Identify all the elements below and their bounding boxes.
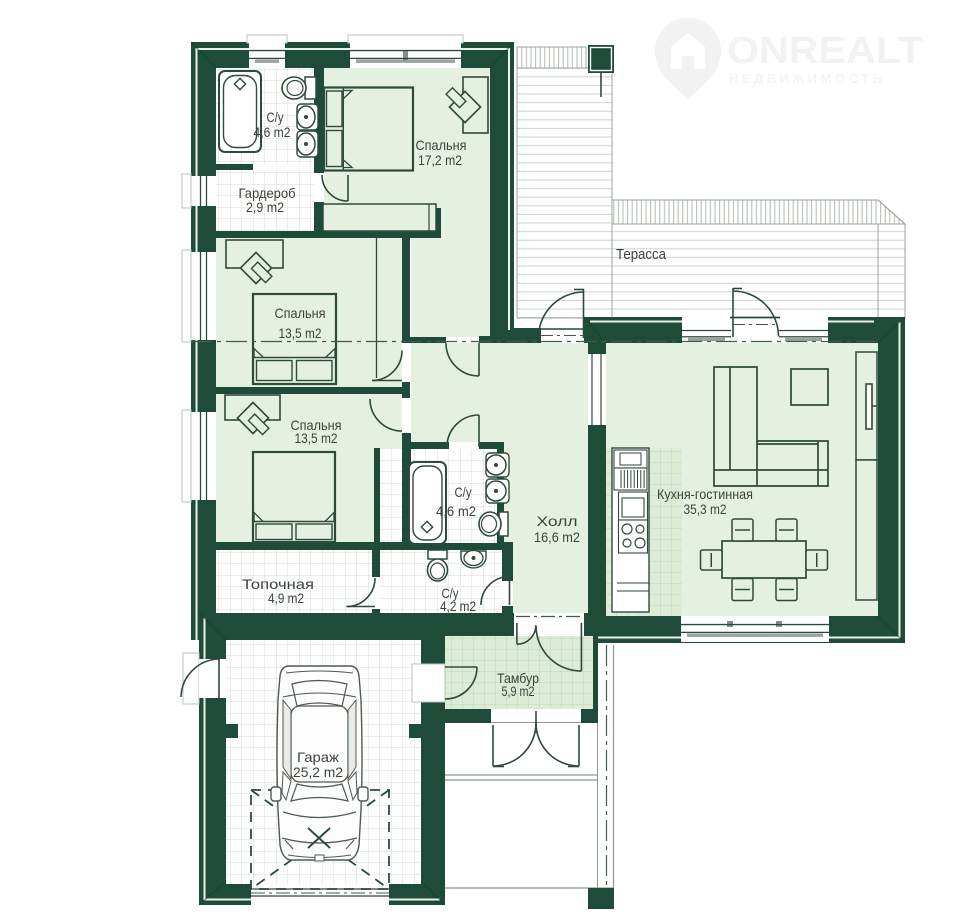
svg-text:13,5 m2: 13,5 m2: [295, 430, 338, 446]
svg-text:Спальня: Спальня: [416, 137, 467, 153]
svg-text:Холл: Холл: [537, 513, 578, 529]
svg-text:35,3 m2: 35,3 m2: [684, 501, 727, 517]
svg-text:4,9 m2: 4,9 m2: [268, 590, 304, 606]
svg-text:ONREALT: ONREALT: [727, 30, 923, 72]
svg-text:С/у: С/у: [267, 109, 284, 125]
svg-text:13,5 m2: 13,5 m2: [279, 325, 322, 341]
svg-text:Спальня: Спальня: [275, 305, 326, 321]
svg-text:4,6 m2: 4,6 m2: [436, 503, 476, 519]
svg-text:5,9 m2: 5,9 m2: [502, 683, 535, 699]
svg-text:С/у: С/у: [455, 484, 472, 500]
svg-text:25,2 m2: 25,2 m2: [293, 764, 343, 780]
svg-text:4,2 m2: 4,2 m2: [440, 598, 476, 614]
svg-text:2,9 m2: 2,9 m2: [246, 199, 284, 215]
svg-text:4,6 m2: 4,6 m2: [254, 124, 291, 140]
svg-text:Гараж: Гараж: [297, 749, 340, 765]
svg-text:16,6 m2: 16,6 m2: [534, 529, 580, 545]
svg-text:17,2 m2: 17,2 m2: [418, 152, 462, 168]
svg-text:Кухня-гостинная: Кухня-гостинная: [657, 486, 753, 502]
svg-text:НЕДВИЖИМОСТЬ: НЕДВИЖИМОСТЬ: [729, 71, 885, 86]
svg-text:Терасса: Терасса: [616, 246, 667, 263]
